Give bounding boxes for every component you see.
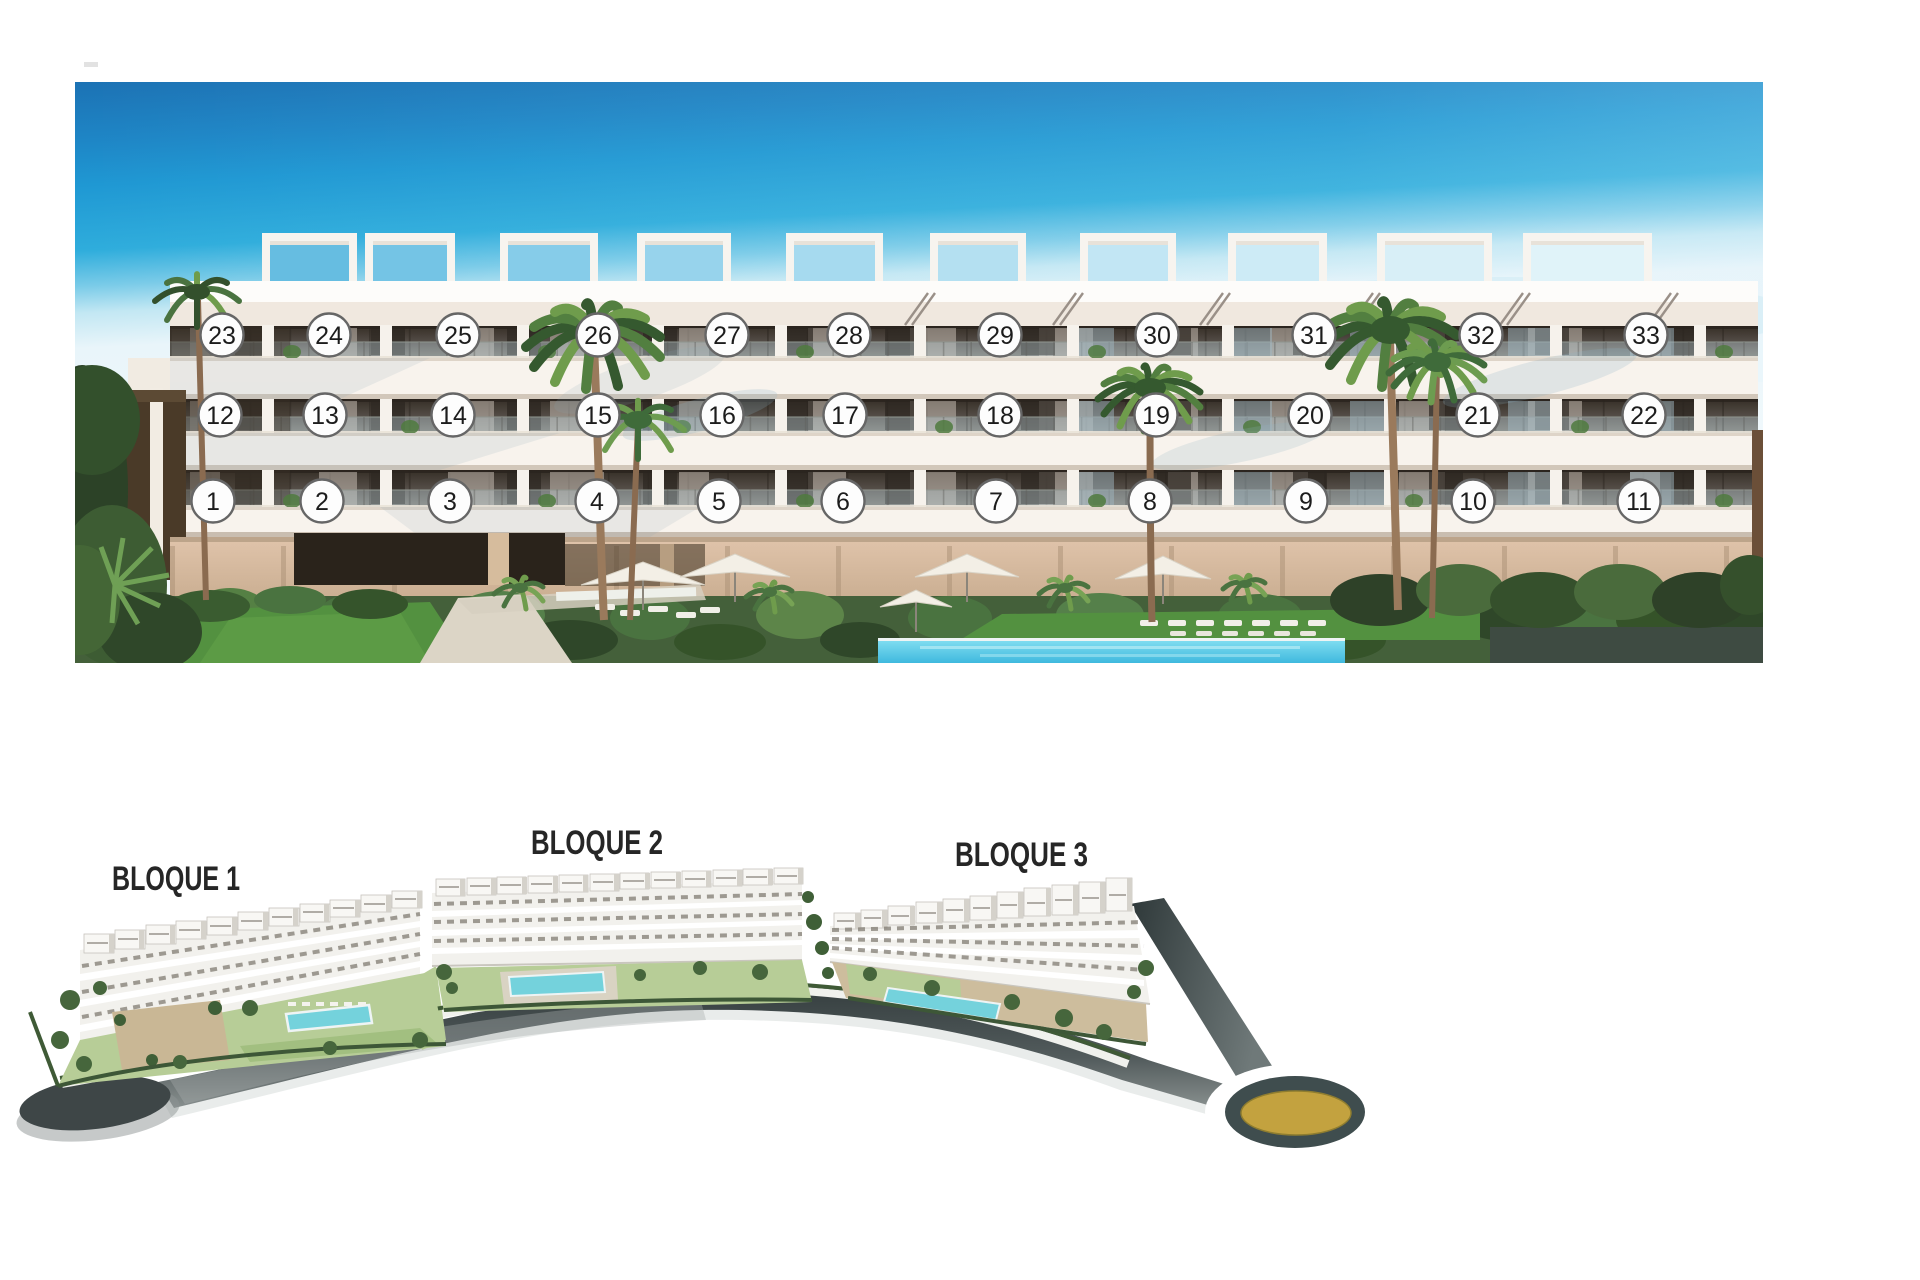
svg-text:25: 25 (444, 322, 472, 350)
svg-text:BLOQUE 3: BLOQUE 3 (955, 836, 1088, 874)
svg-text:4: 4 (590, 488, 604, 516)
svg-text:17: 17 (831, 402, 859, 430)
svg-text:11: 11 (1626, 488, 1652, 516)
svg-text:BLOQUE 2: BLOQUE 2 (531, 824, 663, 862)
svg-text:22: 22 (1630, 402, 1658, 430)
svg-text:12: 12 (206, 402, 234, 430)
svg-text:7: 7 (989, 488, 1003, 516)
svg-text:28: 28 (835, 322, 863, 350)
svg-text:6: 6 (836, 488, 850, 516)
svg-text:5: 5 (712, 488, 726, 516)
svg-text:20: 20 (1296, 402, 1324, 430)
svg-text:BLOQUE 1: BLOQUE 1 (112, 860, 240, 898)
svg-text:21: 21 (1464, 402, 1492, 430)
svg-text:10: 10 (1459, 488, 1487, 516)
svg-text:23: 23 (208, 322, 236, 350)
svg-text:1: 1 (206, 488, 220, 516)
svg-text:29: 29 (986, 322, 1014, 350)
svg-text:14: 14 (439, 402, 467, 430)
svg-text:13: 13 (311, 402, 339, 430)
svg-text:30: 30 (1143, 322, 1171, 350)
svg-text:31: 31 (1300, 322, 1328, 350)
svg-text:33: 33 (1632, 322, 1660, 350)
svg-text:27: 27 (713, 322, 741, 350)
svg-text:3: 3 (443, 488, 457, 516)
svg-text:19: 19 (1142, 402, 1170, 430)
svg-text:18: 18 (986, 402, 1014, 430)
svg-text:24: 24 (315, 322, 343, 350)
svg-text:8: 8 (1143, 488, 1157, 516)
svg-text:2: 2 (315, 488, 329, 516)
svg-text:16: 16 (708, 402, 736, 430)
svg-text:9: 9 (1299, 488, 1313, 516)
svg-text:32: 32 (1467, 322, 1495, 350)
svg-text:15: 15 (584, 402, 612, 430)
svg-text:26: 26 (584, 322, 612, 350)
